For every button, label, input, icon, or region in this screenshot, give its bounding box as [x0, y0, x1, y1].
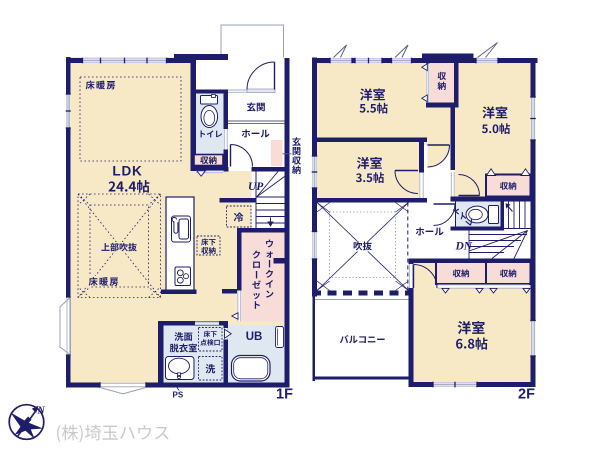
- svg-text:PS: PS: [173, 391, 184, 400]
- svg-text:LDK: LDK: [112, 164, 142, 179]
- svg-text:1F: 1F: [276, 387, 293, 403]
- svg-text:2F: 2F: [518, 387, 535, 403]
- svg-text:UP: UP: [248, 181, 264, 193]
- svg-text:N: N: [37, 406, 46, 417]
- svg-text:DN: DN: [455, 241, 473, 253]
- svg-text:UB: UB: [246, 331, 263, 343]
